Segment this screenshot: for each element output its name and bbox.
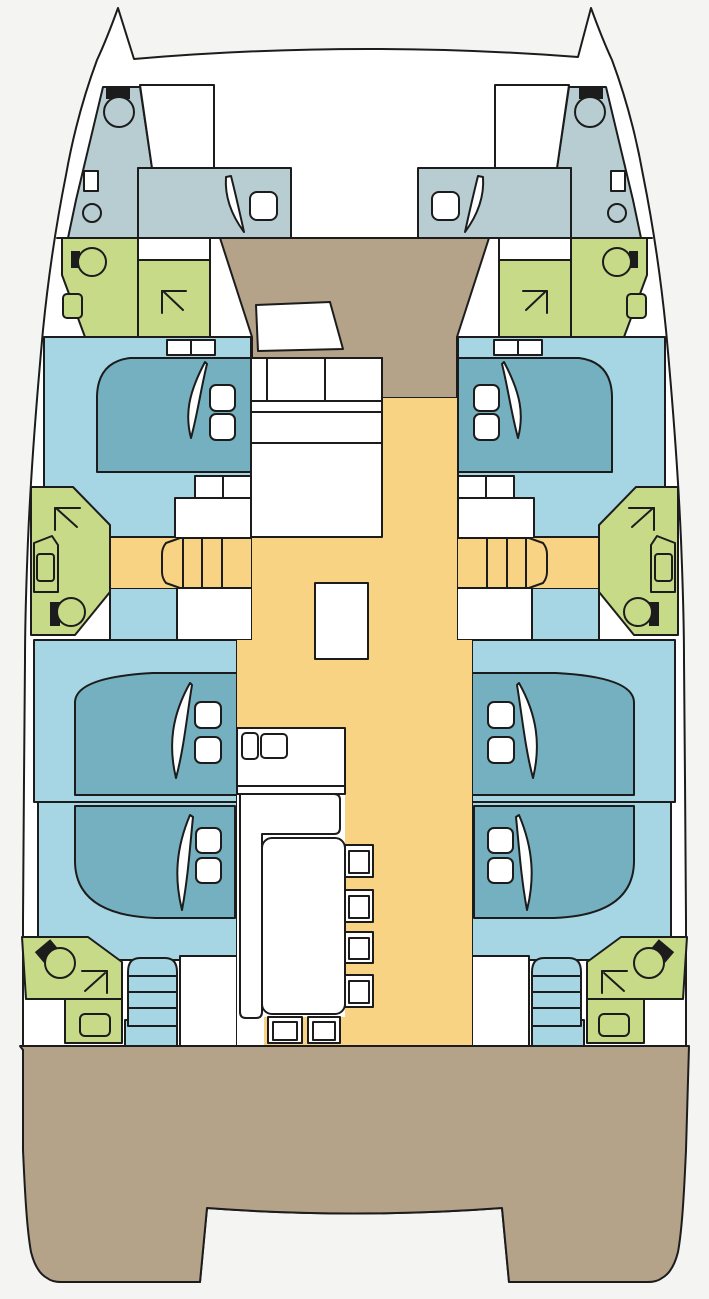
bed-pillow (210, 414, 235, 440)
bed-pillow (195, 737, 221, 763)
counter-edge (237, 786, 345, 794)
fore-cabin-step (195, 476, 223, 498)
dinette-table: Dinette table (262, 838, 345, 1014)
bow-sink-icon (83, 204, 101, 222)
galley-sink-icon (261, 734, 287, 758)
saloon-seating: Saloon forward seating and chart area (251, 358, 382, 537)
aft-cockpit-deck: Aft cockpit deck (20, 1046, 689, 1282)
hull-side-hatch (84, 171, 98, 191)
anchor-locker: Anchor locker (140, 85, 214, 168)
fore-shower-lobby (138, 238, 210, 260)
aft-cabin-bed: Aft guest cabin double berth (75, 673, 237, 795)
stair-landing-fore (175, 498, 251, 538)
saloon-stairs: Steps from saloon down into hull (162, 538, 252, 588)
galley-sink-icon (242, 733, 258, 759)
crew-berth-pillow (250, 192, 277, 220)
sun-pad: Forward cockpit cushion (256, 302, 343, 351)
bow-toilet-icon (104, 87, 134, 127)
floor-plan-svg: Catamaran hull silhouette with twin bows… (0, 0, 709, 1299)
fore-cabin-shelf (167, 340, 191, 355)
toilet-icon (50, 598, 85, 626)
dinette-chair (345, 890, 373, 922)
bed-pillow (196, 858, 221, 883)
bed-pillow (196, 828, 221, 853)
dinette-chair (345, 932, 373, 963)
bed-pillow (210, 385, 235, 411)
dinette-chair (345, 845, 373, 877)
bed-pillow (195, 702, 221, 728)
sink-icon (80, 1014, 110, 1036)
mid-cabin-strip (110, 588, 177, 640)
catamaran-floor-plan: Catamaran hull silhouette with twin bows… (0, 0, 709, 1299)
fore-cabin-shelf (191, 340, 215, 355)
stair-landing-aft (177, 588, 252, 640)
aft-passage (180, 956, 237, 1046)
dinette-chair (308, 1017, 340, 1043)
saloon-island: Saloon island unit (315, 583, 368, 659)
saloon-seat-block (251, 358, 382, 537)
fore-bathroom: Forward bathroom: toilet, sink and separ… (62, 238, 210, 337)
sink-icon (63, 294, 82, 318)
sink-icon (37, 554, 54, 581)
fore-shower-room (138, 260, 210, 337)
dinette-chair (345, 975, 373, 1007)
fore-cabin-step (223, 476, 251, 498)
dinette-chair (268, 1017, 302, 1043)
